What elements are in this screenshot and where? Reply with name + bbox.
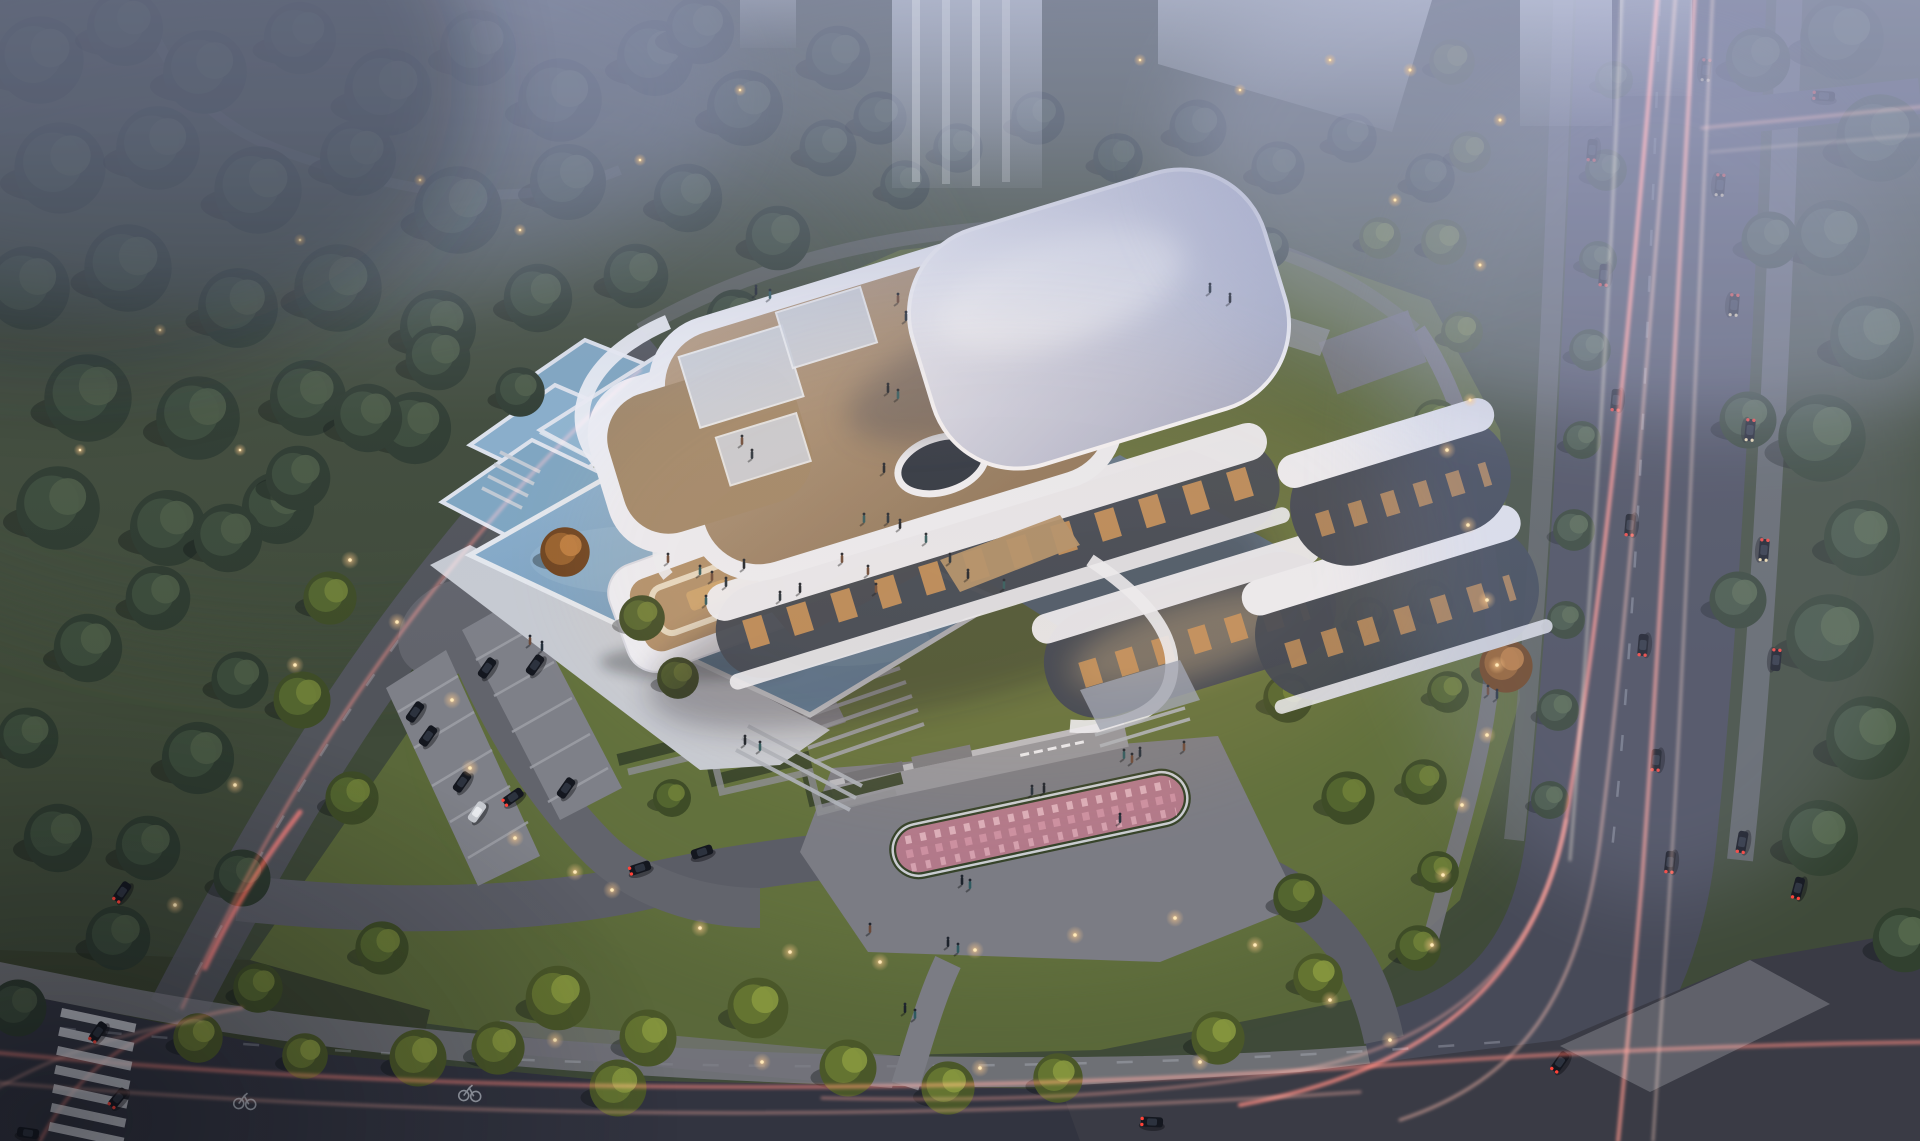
street-lamp — [1423, 936, 1441, 954]
street-lamp — [1191, 1053, 1209, 1071]
street-lamp — [514, 224, 527, 237]
street-lamp — [1478, 726, 1496, 744]
street-lamp — [1473, 258, 1487, 272]
street-lamp — [1066, 926, 1084, 944]
street-lamp — [1321, 991, 1339, 1009]
street-lamp — [971, 1059, 989, 1077]
street-lamp — [1493, 113, 1507, 127]
street-lamp — [1166, 909, 1184, 927]
street-lamp — [74, 444, 87, 457]
street-lamp — [286, 656, 304, 674]
street-lamp — [1453, 796, 1471, 814]
street-lamp — [966, 941, 984, 959]
street-lamp — [1324, 54, 1337, 67]
scene-svg — [0, 0, 1920, 1141]
street-lamp — [781, 943, 799, 961]
aerial-rendering-canvas — [0, 0, 1920, 1141]
street-lamp — [443, 691, 461, 709]
street-lamp — [1488, 656, 1506, 674]
street-lamp — [691, 919, 709, 937]
street-lamp — [1463, 393, 1477, 407]
street-lamp — [1234, 84, 1247, 97]
street-lamp — [1403, 63, 1417, 77]
street-lamp — [871, 953, 889, 971]
street-lamp — [734, 84, 747, 97]
street-lamp — [341, 551, 359, 569]
tower-ne-1 — [1520, 0, 1612, 126]
street-lamp — [566, 863, 584, 881]
building-warm-glow — [570, 320, 1430, 800]
street-lamp — [1478, 591, 1496, 609]
tower-nw — [740, 0, 796, 48]
street-lamp — [1434, 866, 1452, 884]
street-lamp — [1134, 54, 1147, 67]
street-lamp — [1388, 193, 1402, 207]
street-lamp — [753, 1053, 771, 1071]
street-lamp — [234, 444, 247, 457]
street-lamp — [1459, 516, 1477, 534]
street-lamp — [461, 759, 479, 777]
street-lamp — [634, 154, 647, 167]
street-lamp — [1438, 441, 1456, 459]
street-lamp — [1246, 936, 1264, 954]
street-lamp — [603, 881, 621, 899]
